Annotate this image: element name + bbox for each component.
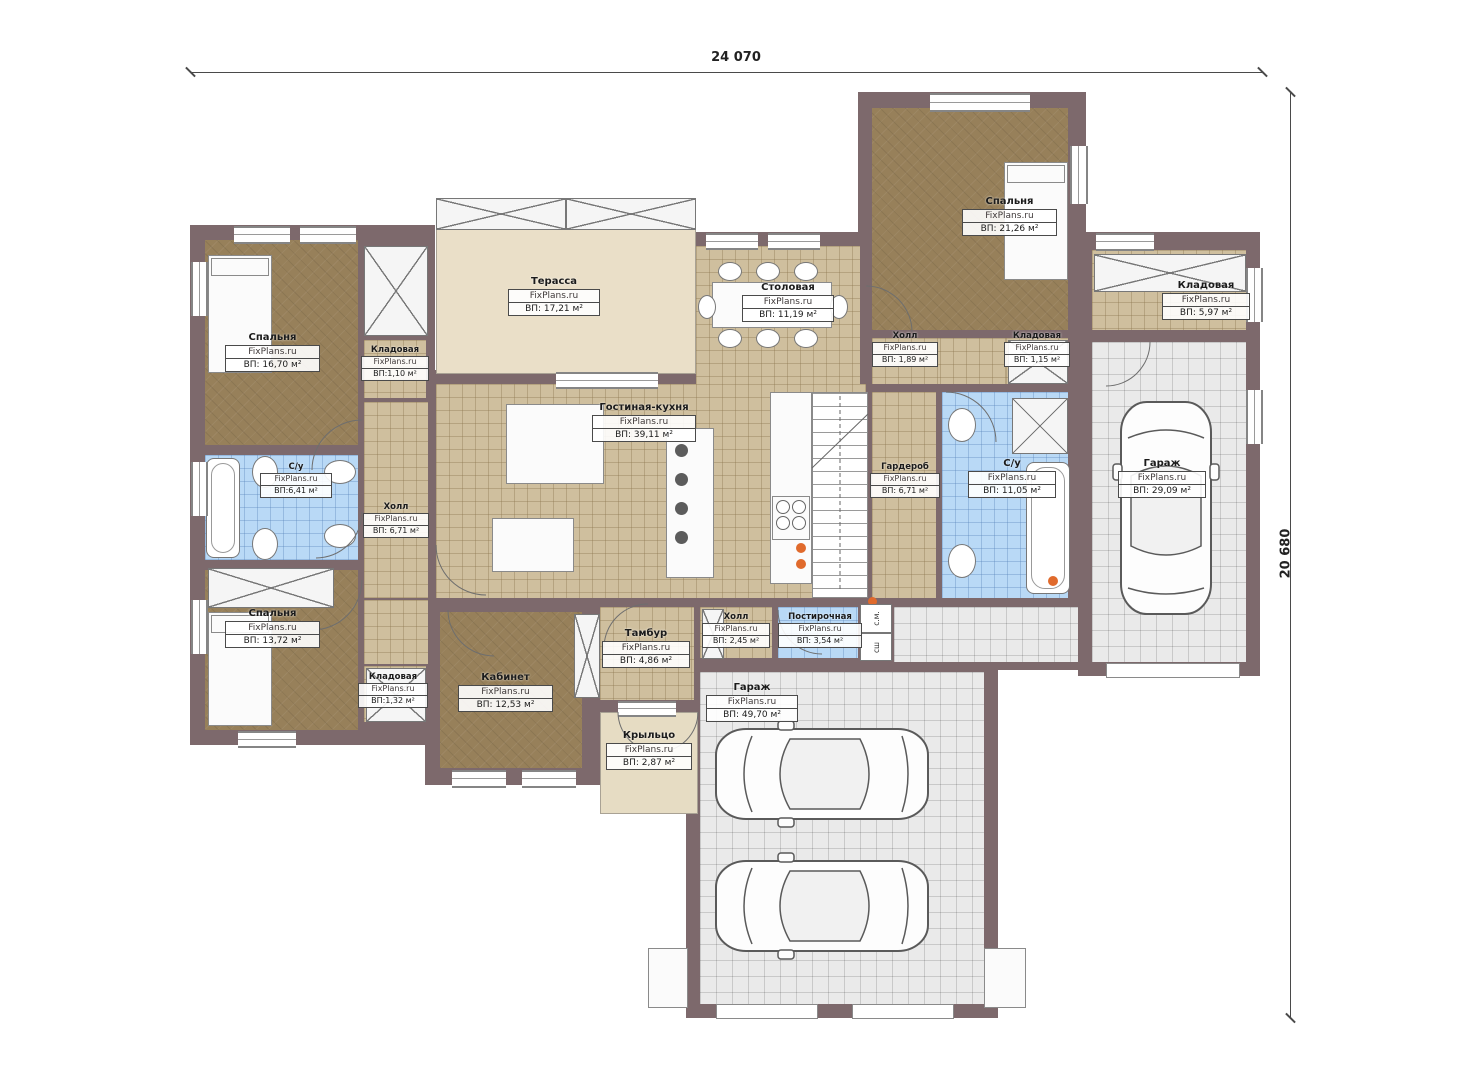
watermark: FixPlans.ru <box>873 343 937 355</box>
room-name: Гостиная-кухня <box>592 402 696 414</box>
room-label-bedroom-2: Спальня FixPlans.ru ВП: 13,72 м² <box>225 608 320 648</box>
room-area: ВП: 29,09 м² <box>1119 485 1205 497</box>
room-label-box: FixPlans.ru ВП: 4,86 м² <box>602 641 690 668</box>
room-label-box: FixPlans.ru ВП: 13,72 м² <box>225 621 320 648</box>
room-name: Тамбур <box>602 628 690 640</box>
room-label-box: FixPlans.ru ВП: 11,19 м² <box>742 295 834 322</box>
room-name: Кладовая <box>361 345 429 355</box>
watermark: FixPlans.ru <box>1005 343 1069 355</box>
watermark: FixPlans.ru <box>743 296 833 309</box>
room-label-terrace: Терасса FixPlans.ru ВП: 17,21 м² <box>508 276 600 316</box>
room-label-box: FixPlans.ru ВП: 16,70 м² <box>225 345 320 372</box>
watermark: FixPlans.ru <box>359 684 427 696</box>
room-name: Гараж <box>1118 458 1206 470</box>
room-label-box: FixPlans.ru ВП: 6,71 м² <box>870 473 940 498</box>
room-area: ВП: 1,89 м² <box>873 355 937 366</box>
car-icon <box>1113 402 1219 614</box>
room-area: ВП: 6,71 м² <box>364 526 428 537</box>
room-name: Терасса <box>508 276 600 288</box>
room-area: ВП: 16,70 м² <box>226 359 319 371</box>
dimension-height-label: 20 680 <box>1279 506 1294 602</box>
floor-plan: Спальня FixPlans.ru ВП: 16,70 м² Кладова… <box>0 0 1474 1080</box>
watermark: FixPlans.ru <box>969 472 1055 485</box>
room-name: Крыльцо <box>606 730 692 742</box>
room-name: Холл <box>872 331 938 341</box>
room-area: ВП:1,32 м² <box>359 696 427 707</box>
room-area: ВП: 3,54 м² <box>779 636 861 647</box>
watermark: FixPlans.ru <box>226 622 319 635</box>
room-area: ВП: 11,19 м² <box>743 309 833 321</box>
room-label-box: FixPlans.ru ВП: 21,26 м² <box>962 209 1057 236</box>
watermark: FixPlans.ru <box>459 686 552 699</box>
room-label-box: FixPlans.ru ВП: 39,11 м² <box>592 415 696 442</box>
room-name: С/у <box>260 462 332 472</box>
watermark: FixPlans.ru <box>226 346 319 359</box>
room-name: Спальня <box>962 196 1057 208</box>
room-name: Кладовая <box>1004 331 1070 341</box>
room-area: ВП: 21,26 м² <box>963 223 1056 235</box>
room-label-hall-1: Холл FixPlans.ru ВП: 6,71 м² <box>363 502 429 538</box>
watermark: FixPlans.ru <box>603 642 689 655</box>
watermark: FixPlans.ru <box>703 624 769 636</box>
room-label-hall-3: Холл FixPlans.ru ВП: 2,45 м² <box>702 612 770 648</box>
appliance-label: с.м. <box>872 611 881 626</box>
watermark: FixPlans.ru <box>362 357 428 369</box>
room-area: ВП: 17,21 м² <box>509 303 599 315</box>
dimension-line-top <box>190 72 1262 73</box>
room-label-vestibule: Тамбур FixPlans.ru ВП: 4,86 м² <box>602 628 690 668</box>
room-name: Спальня <box>225 608 320 620</box>
washing-machine: с.м. <box>860 604 892 633</box>
room-name: Столовая <box>742 282 834 294</box>
room-label-porch: Крыльцо FixPlans.ru ВП: 2,87 м² <box>606 730 692 770</box>
room-label-box: FixPlans.ru ВП: 12,53 м² <box>458 685 553 712</box>
room-label-box: FixPlans.ru ВП: 1,15 м² <box>1004 342 1070 367</box>
room-label-bathroom-2: С/у FixPlans.ru ВП: 11,05 м² <box>968 458 1056 498</box>
watermark: FixPlans.ru <box>364 514 428 526</box>
room-area: ВП: 6,71 м² <box>871 486 939 497</box>
room-area: ВП: 12,53 м² <box>459 699 552 711</box>
watermark: FixPlans.ru <box>261 474 331 486</box>
room-label-bedroom-3: Спальня FixPlans.ru ВП: 21,26 м² <box>962 196 1057 236</box>
room-area: ВП: 2,45 м² <box>703 636 769 647</box>
room-name: Холл <box>363 502 429 512</box>
room-label-garage-1: Гараж FixPlans.ru ВП: 29,09 м² <box>1118 458 1206 498</box>
room-label-dining: Столовая FixPlans.ru ВП: 11,19 м² <box>742 282 834 322</box>
room-name: Холл <box>702 612 770 622</box>
watermark: FixPlans.ru <box>509 290 599 303</box>
room-label-box: FixPlans.ru ВП: 2,45 м² <box>702 623 770 648</box>
room-name: Кладовая <box>358 672 428 682</box>
room-label-storage-4: Кладовая FixPlans.ru ВП: 5,97 м² <box>1162 280 1250 320</box>
room-name: Гардероб <box>870 462 940 472</box>
watermark: FixPlans.ru <box>779 624 861 636</box>
stair-details <box>812 396 868 592</box>
room-name: Спальня <box>225 332 320 344</box>
room-area: ВП: 4,86 м² <box>603 655 689 667</box>
room-label-box: FixPlans.ru ВП: 49,70 м² <box>706 695 798 722</box>
room-name: С/у <box>968 458 1056 470</box>
room-label-laundry: Постирочная FixPlans.ru ВП: 3,54 м² <box>778 612 862 648</box>
room-name: Кабинет <box>458 672 553 684</box>
car-icon <box>716 853 928 959</box>
watermark: FixPlans.ru <box>593 416 695 429</box>
room-label-box: FixPlans.ru ВП:1,32 м² <box>358 683 428 708</box>
room-name: Постирочная <box>778 612 862 622</box>
dimension-width-label: 24 070 <box>688 50 784 65</box>
room-area: ВП: 2,87 м² <box>607 757 691 769</box>
room-name: Кладовая <box>1162 280 1250 292</box>
room-label-box: FixPlans.ru ВП: 11,05 м² <box>968 471 1056 498</box>
room-label-box: FixPlans.ru ВП: 3,54 м² <box>778 623 862 648</box>
room-label-living-kitchen: Гостиная-кухня FixPlans.ru ВП: 39,11 м² <box>592 402 696 442</box>
room-area: ВП: 13,72 м² <box>226 635 319 647</box>
room-label-storage-2: Кладовая FixPlans.ru ВП:1,32 м² <box>358 672 428 708</box>
room-label-box: FixPlans.ru ВП: 17,21 м² <box>508 289 600 316</box>
car-icon <box>716 721 928 827</box>
room-area: ВП: 11,05 м² <box>969 485 1055 497</box>
room-label-box: FixPlans.ru ВП:1,10 м² <box>361 356 429 381</box>
watermark: FixPlans.ru <box>1163 294 1249 307</box>
room-label-box: FixPlans.ru ВП: 1,89 м² <box>872 342 938 367</box>
room-label-wardrobe: Гардероб FixPlans.ru ВП: 6,71 м² <box>870 462 940 498</box>
room-label-box: FixPlans.ru ВП: 5,97 м² <box>1162 293 1250 320</box>
room-area: ВП: 5,97 м² <box>1163 307 1249 319</box>
room-area: ВП: 39,11 м² <box>593 429 695 441</box>
plan-overlay-svg <box>0 0 1474 1080</box>
room-label-hall-2: Холл FixPlans.ru ВП: 1,89 м² <box>872 331 938 367</box>
room-area: ВП: 1,15 м² <box>1005 355 1069 366</box>
room-label-storage-3: Кладовая FixPlans.ru ВП: 1,15 м² <box>1004 331 1070 367</box>
watermark: FixPlans.ru <box>1119 472 1205 485</box>
room-name: Гараж <box>706 682 798 694</box>
room-label-garage-2: Гараж FixPlans.ru ВП: 49,70 м² <box>706 682 798 722</box>
room-label-storage-1: Кладовая FixPlans.ru ВП:1,10 м² <box>361 345 429 381</box>
watermark: FixPlans.ru <box>607 744 691 757</box>
room-area: ВП:6,41 м² <box>261 486 331 497</box>
room-area: ВП: 49,70 м² <box>707 709 797 721</box>
room-label-box: FixPlans.ru ВП: 6,71 м² <box>363 513 429 538</box>
appliance-label: сш <box>872 642 881 653</box>
room-area: ВП:1,10 м² <box>362 369 428 380</box>
room-label-box: FixPlans.ru ВП: 2,87 м² <box>606 743 692 770</box>
room-label-bedroom-1: Спальня FixPlans.ru ВП: 16,70 м² <box>225 332 320 372</box>
watermark: FixPlans.ru <box>871 474 939 486</box>
room-label-box: FixPlans.ru ВП:6,41 м² <box>260 473 332 498</box>
room-label-bathroom-1: С/у FixPlans.ru ВП:6,41 м² <box>260 462 332 498</box>
room-label-box: FixPlans.ru ВП: 29,09 м² <box>1118 471 1206 498</box>
watermark: FixPlans.ru <box>963 210 1056 223</box>
room-label-office: Кабинет FixPlans.ru ВП: 12,53 м² <box>458 672 553 712</box>
watermark: FixPlans.ru <box>707 696 797 709</box>
dryer: сш <box>860 633 892 661</box>
